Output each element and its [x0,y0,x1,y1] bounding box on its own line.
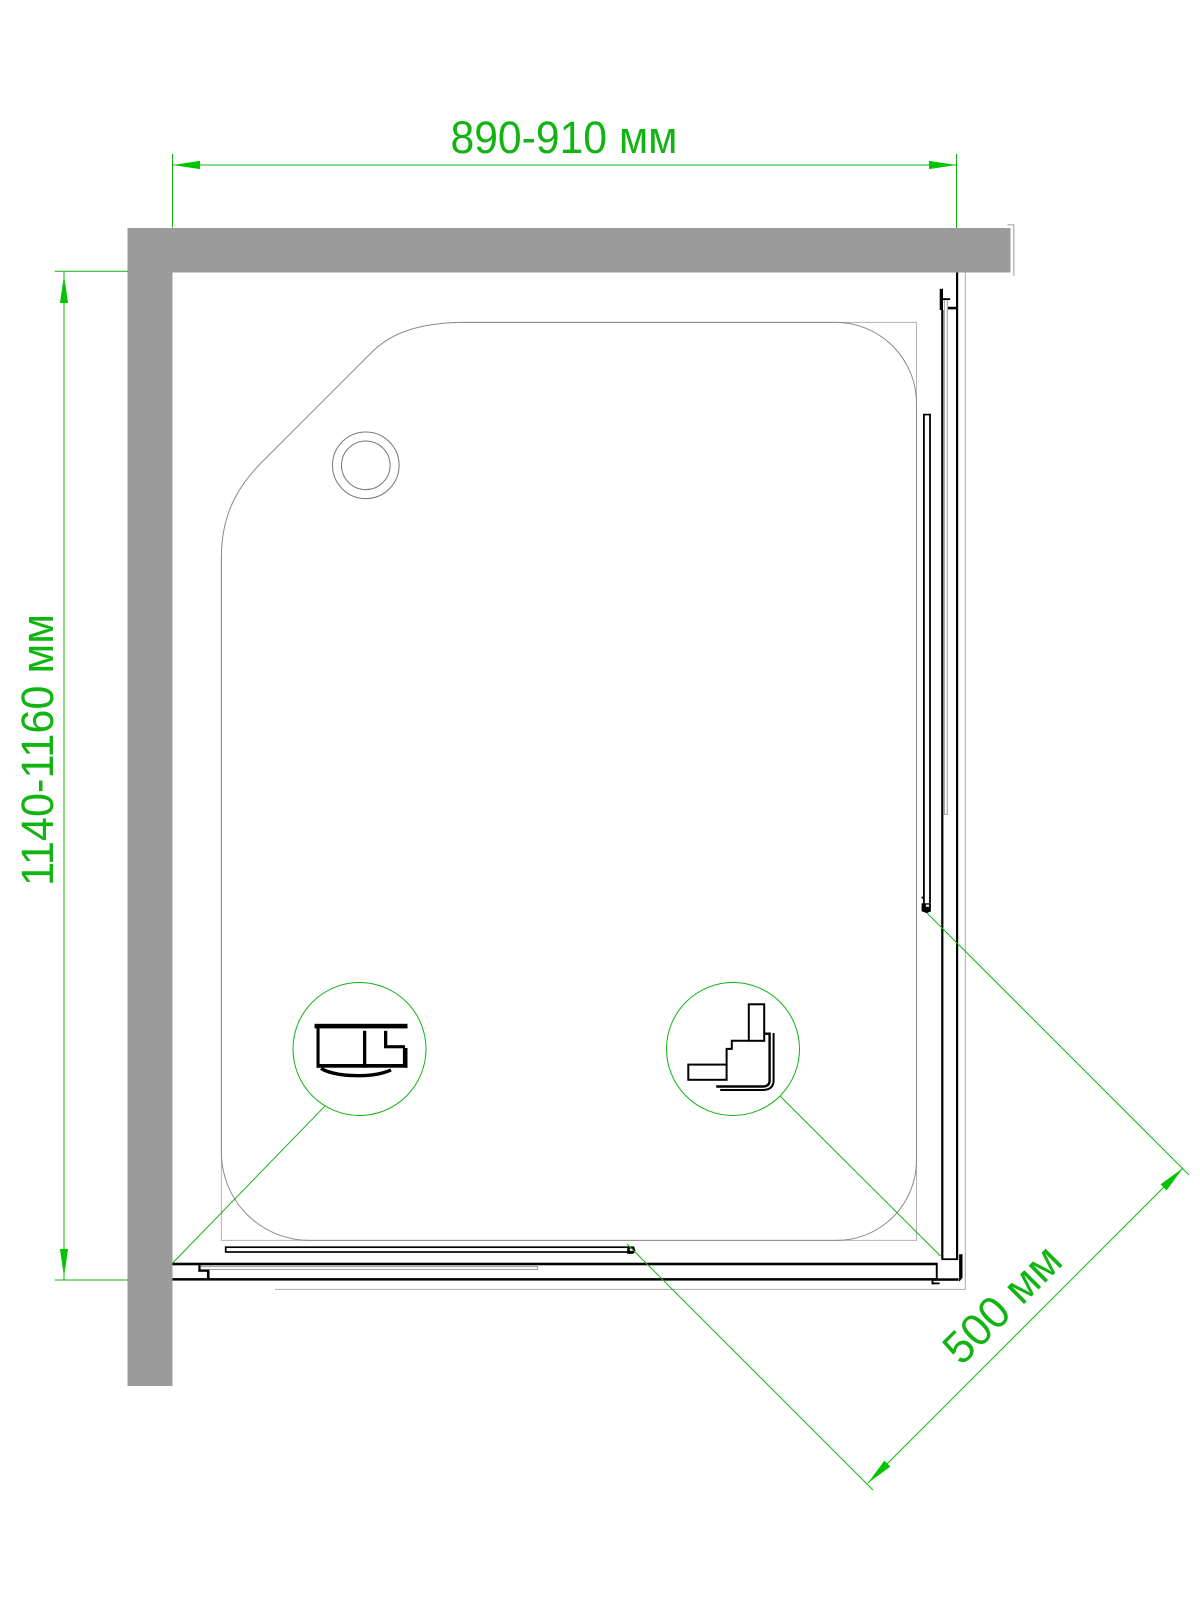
svg-text:1140-1160 мм: 1140-1160 мм [12,614,63,886]
svg-text:890-910 мм: 890-910 мм [451,112,678,163]
